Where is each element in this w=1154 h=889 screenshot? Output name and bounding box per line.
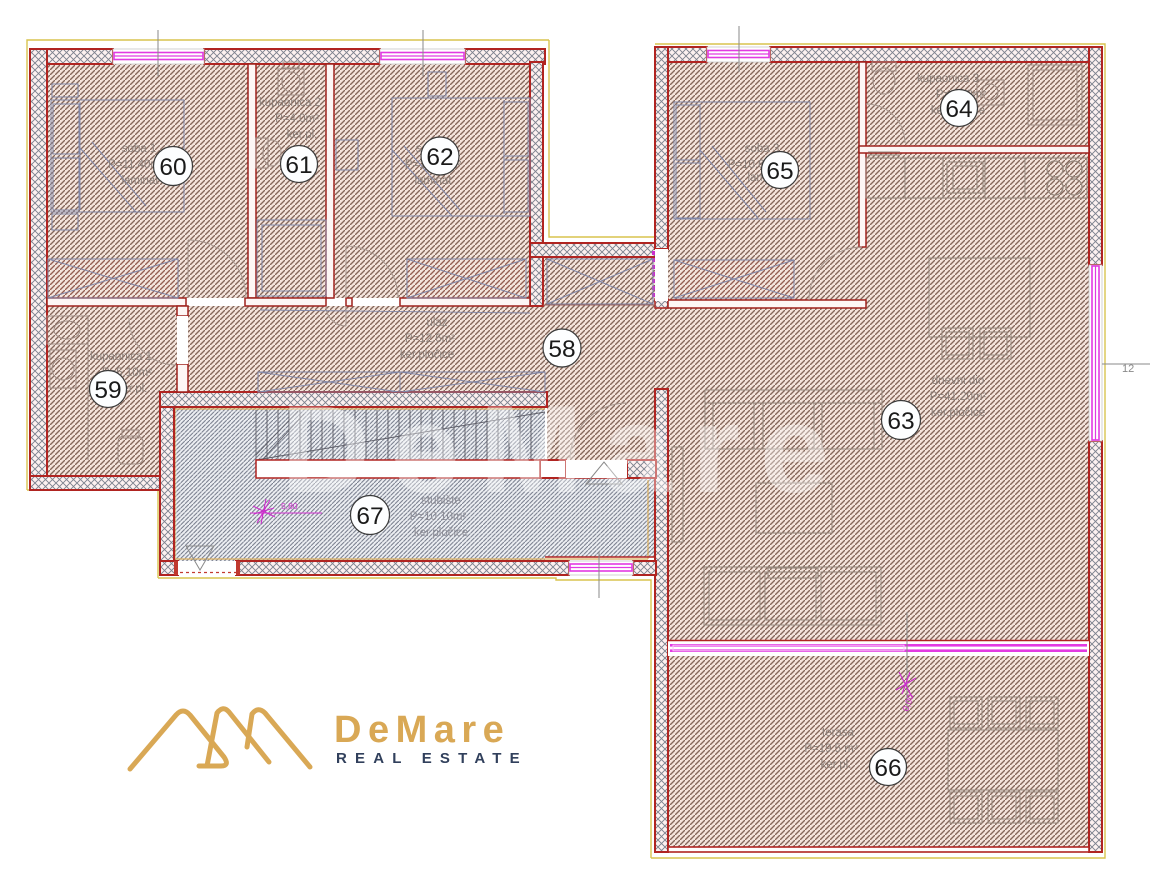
svg-text:62: 62: [426, 144, 453, 171]
svg-text:kupaonica 2: kupaonica 2: [259, 97, 321, 109]
svg-text:terasa: terasa: [822, 727, 855, 739]
svg-text:64: 64: [945, 96, 972, 123]
svg-text:ker.pl.: ker.pl.: [821, 759, 852, 771]
svg-text:ker.pločice: ker.pločice: [414, 527, 468, 539]
svg-text:ulaz: ulaz: [426, 317, 447, 329]
svg-text:P=12.6m²: P=12.6m²: [405, 333, 455, 345]
svg-text:DeMare: DeMare: [281, 381, 849, 519]
svg-text:66: 66: [874, 755, 901, 782]
svg-text:58: 58: [548, 336, 575, 363]
svg-text:P=19.5 m²: P=19.5 m²: [804, 743, 858, 755]
svg-text:61: 61: [285, 152, 312, 179]
svg-text:kupaonica 1: kupaonica 1: [90, 351, 152, 363]
svg-text:60: 60: [159, 154, 186, 181]
svg-text:P=41.20m²: P=41.20m²: [930, 391, 987, 403]
svg-text:DeMare: DeMare: [334, 709, 510, 751]
svg-text:laminat: laminat: [121, 175, 159, 187]
svg-text:59: 59: [94, 377, 121, 404]
svg-text:ker.pločice: ker.pločice: [400, 349, 454, 361]
svg-text:12: 12: [1122, 363, 1134, 375]
svg-text:soba 1: soba 1: [122, 143, 157, 155]
svg-text:REAL ESTATE: REAL ESTATE: [336, 750, 528, 767]
svg-text:65: 65: [766, 158, 793, 185]
svg-text:dnevni dio: dnevni dio: [932, 375, 984, 387]
svg-text:63: 63: [887, 408, 914, 435]
svg-text:laminat: laminat: [414, 175, 452, 187]
svg-text:ker.pločice: ker.pločice: [931, 407, 985, 419]
svg-text:P=4.0m²: P=4.0m²: [275, 113, 319, 125]
svg-text:kupaonica 3: kupaonica 3: [917, 73, 979, 85]
svg-text:ker.pl.: ker.pl.: [287, 129, 318, 141]
